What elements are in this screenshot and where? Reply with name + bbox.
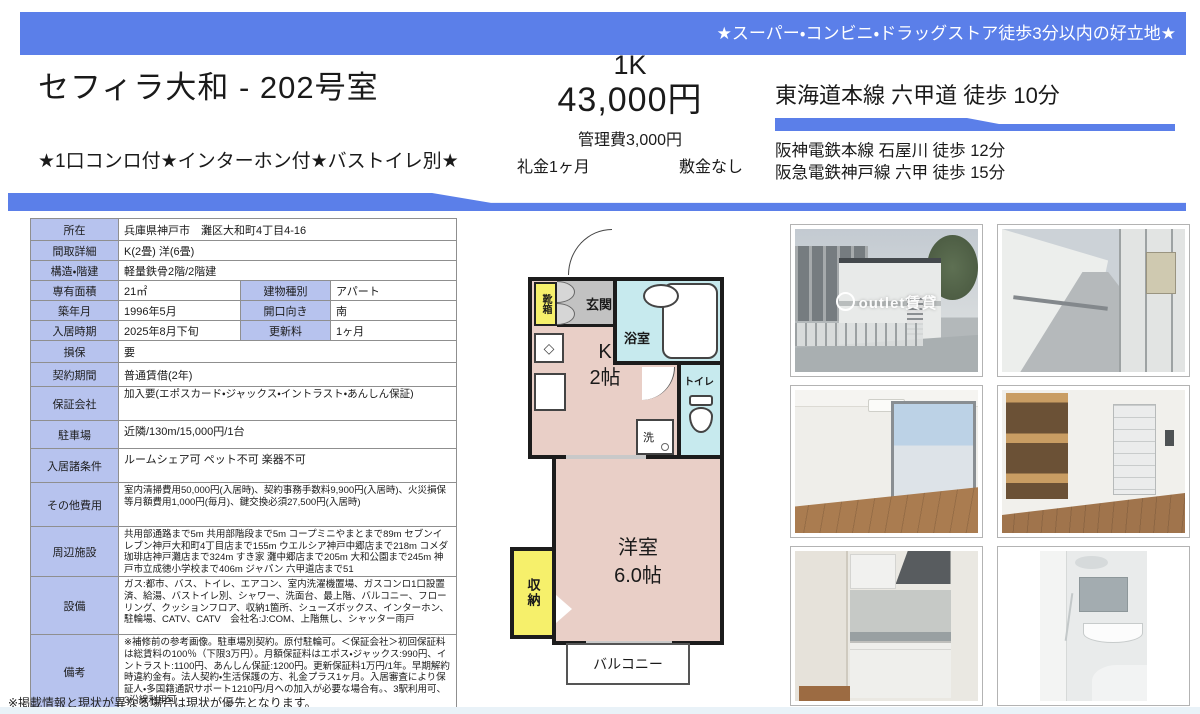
outlet-logo-icon [836, 292, 855, 311]
row-label: 損保 [31, 341, 119, 363]
table-row: 周辺施設 共用部通路まで5m 共用部階段まで5m コープミニやまとまで89m セ… [31, 527, 457, 577]
table-row: その他費用 室内清掃費用50,000円(入居時)、契約事務手数料9,900円(入… [31, 483, 457, 527]
row-value: K(2畳) 洋(6畳) [119, 241, 457, 261]
photo-frame [997, 224, 1190, 377]
row-label: 駐車場 [31, 421, 119, 449]
toilet-tank-icon [689, 395, 713, 406]
table-row: 入居諸条件 ルームシェア可 ペット不可 楽器不可 [31, 449, 457, 483]
photo-exterior-building: outlet賃貸 [795, 229, 978, 372]
row-value: 1ヶ月 [331, 321, 457, 341]
row-value: 南 [331, 301, 457, 321]
row-label: 周辺施設 [31, 527, 119, 577]
row-value: 軽量鉄骨2階/2階建 [119, 261, 457, 281]
toilet-bowl-icon [689, 407, 713, 433]
photo-room-window [795, 390, 978, 533]
door-edge-shape [1040, 551, 1067, 701]
spec-table: 所在 兵庫県神戸市 灘区大和町4丁目4-16 間取詳細 K(2畳) 洋(6畳) … [30, 218, 457, 709]
row-value: 加入要(エポスカード・ジャックス・イントラスト・あんしん保証) [119, 387, 457, 421]
wood-floor-shape [799, 686, 850, 701]
base-cabinet-shape [850, 641, 951, 698]
feature-highlights: ★1口コンロ付★インターホン付★バストイレ別★ [38, 146, 459, 173]
wood-floor-shape [1002, 493, 1185, 533]
table-row: 保証会社 加入要(エポスカード・ジャックス・イントラスト・あんしん保証) [31, 387, 457, 421]
closet-shelves-shape [1006, 393, 1068, 499]
row-label: 入居諸条件 [31, 449, 119, 483]
row-value: 要 [119, 341, 457, 363]
photo-common-corridor [1002, 229, 1185, 372]
backsplash-shape [850, 590, 951, 632]
upper-cabinet-shape [850, 554, 896, 589]
genkan-door-arc [557, 281, 575, 303]
row-label: 入居時期 [31, 321, 119, 341]
mirror-shape [1079, 577, 1129, 612]
top-catch-banner: ★スーパー・コンビニ・ドラッグストア徒歩3分以内の好立地★ [20, 12, 1186, 55]
row-value: ルームシェア可 ペット不可 楽器不可 [119, 449, 457, 483]
row-label: 間取詳細 [31, 241, 119, 261]
row-label: 所在 [31, 219, 119, 241]
intercom-shape [1165, 430, 1174, 446]
table-row: 入居時期 2025年8月下旬 更新料 1ヶ月 [31, 321, 457, 341]
row-value: 室内清掃費用50,000円(入居時)、契約事務手数料9,900円(入居時)、火災… [119, 483, 457, 527]
meter-box-shape [1146, 252, 1175, 294]
row-value: 近隣/130m/15,000円/1台 [119, 421, 457, 449]
table-row: 駐車場 近隣/130m/15,000円/1台 [31, 421, 457, 449]
hall-door-arc [642, 367, 675, 400]
washer-faucet-icon [661, 443, 669, 451]
photo-room-closet [1002, 390, 1185, 533]
table-row: 間取詳細 K(2畳) 洋(6畳) [31, 241, 457, 261]
row-label: 専有面積 [31, 281, 119, 301]
key-money: 礼金1ヶ月 [517, 153, 590, 177]
row-value: 21㎡ [119, 281, 241, 301]
entrance-door-arc [568, 229, 612, 275]
table-row: 築年月 1996年5月 開口向き 南 [31, 301, 457, 321]
table-row: 所在 兵庫県神戸市 灘区大和町4丁目4-16 [31, 219, 457, 241]
range-hood-shape [896, 551, 951, 584]
flyer-page: ★スーパー・コンビニ・ドラッグストア徒歩3分以内の好立地★ セフィラ大和 - 2… [0, 0, 1200, 714]
row-value: 共用部通路まで5m 共用部階段まで5m コープミニやまとまで89m セブンイレブ… [119, 527, 457, 577]
kitchen-sink-icon [534, 373, 566, 411]
photo-frame [790, 385, 983, 538]
bottom-strip [0, 707, 1200, 714]
sink-shape [1083, 623, 1144, 643]
layout-type: 1K [515, 50, 745, 80]
storage-door-mark [556, 595, 572, 623]
bathtub-shape [1092, 665, 1147, 701]
basin-icon [643, 284, 679, 308]
watermark: outlet賃貸 [795, 292, 978, 313]
western-room-area: 洋室 6.0帖 [552, 455, 724, 645]
storage-area: 収納 [510, 547, 556, 639]
fence-shape [795, 323, 923, 346]
table-row: 契約期間 普通賃借(2年) [31, 363, 457, 387]
photo-frame [997, 385, 1190, 538]
table-row: 損保 要 [31, 341, 457, 363]
row-value: 普通賃借(2年) [119, 363, 457, 387]
row-value: 2025年8月下旬 [119, 321, 241, 341]
deposit: 敷金なし [679, 153, 743, 177]
counter-shape [850, 632, 951, 641]
vent-fan-shape [1075, 556, 1108, 570]
photo-grid: outlet賃貸 [790, 224, 1190, 706]
access-sub-line-2: 阪急電鉄神戸線 六甲 徒歩 15分 [775, 162, 1187, 184]
shoe-box-area: 靴箱 [534, 282, 557, 326]
photo-frame: outlet賃貸 [790, 224, 983, 377]
row-value: 兵庫県神戸市 灘区大和町4丁目4-16 [119, 219, 457, 241]
photo-frame [997, 546, 1190, 706]
row-label: 設備 [31, 577, 119, 635]
row-label: 開口向き [241, 301, 331, 321]
floor-plan: 靴箱 玄関 浴室 トイレ ◇ 洗 [500, 225, 785, 690]
entrance-area: 玄関 [557, 281, 615, 327]
sliding-door-shape [1113, 404, 1155, 495]
access-block: 東海道本線 六甲道 徒歩 10分 阪神電鉄本線 石屋川 徒歩 12分 阪急電鉄神… [775, 82, 1187, 184]
property-title: セフィラ大和 - 202号室 [38, 62, 379, 107]
price-block: 1K 43,000円 管理費3,000円 礼金1ヶ月 敷金なし [515, 50, 745, 177]
photo-kitchen [795, 551, 978, 701]
row-value: ガス:都市、バス、トイレ、エアコン、室内洗濯機置場、ガスコンロ1口設置済、給湯、… [119, 577, 457, 635]
window-shape [891, 401, 976, 499]
row-label: 保証会社 [31, 387, 119, 421]
wall-shape [795, 551, 848, 701]
toilet-area: トイレ [677, 365, 720, 455]
row-label: 築年月 [31, 301, 119, 321]
gas-stove-icon: ◇ [534, 333, 564, 363]
wood-floor-shape [795, 487, 978, 533]
header-divider-bar [8, 193, 1186, 211]
genkan-door-arc [557, 303, 575, 325]
kitchen-label: K 2帖 [570, 339, 640, 391]
table-row: 専有面積 21㎡ 建物種別 アパート [31, 281, 457, 301]
row-value: 1996年5月 [119, 301, 241, 321]
photo-bathroom [1002, 551, 1185, 701]
access-underline-bar [775, 118, 1175, 131]
balcony-area: バルコニー [566, 643, 690, 685]
row-label: 更新料 [241, 321, 331, 341]
money-row: 礼金1ヶ月 敷金なし [515, 153, 745, 177]
washer-space: 洗 [636, 419, 674, 455]
western-room-label: 洋室 6.0帖 [556, 534, 720, 590]
management-fee: 管理費3,000円 [515, 126, 745, 150]
floorplan-upper-block: 靴箱 玄関 浴室 トイレ ◇ 洗 [528, 277, 724, 459]
row-label: 構造・階建 [31, 261, 119, 281]
table-row: 構造・階建 軽量鉄骨2階/2階建 [31, 261, 457, 281]
rent-amount: 43,000円 [515, 80, 745, 120]
doors-shape [1119, 229, 1185, 372]
window-mark [566, 455, 646, 459]
row-label: 建物種別 [241, 281, 331, 301]
access-sub-line-1: 阪神電鉄本線 石屋川 徒歩 12分 [775, 140, 1187, 162]
row-value: アパート [331, 281, 457, 301]
access-main-line: 東海道本線 六甲道 徒歩 10分 [775, 82, 1187, 110]
row-label: 契約期間 [31, 363, 119, 387]
table-row: 設備 ガス:都市、バス、トイレ、エアコン、室内洗濯機置場、ガスコンロ1口設置済、… [31, 577, 457, 635]
photo-frame [790, 546, 983, 706]
row-label: その他費用 [31, 483, 119, 527]
